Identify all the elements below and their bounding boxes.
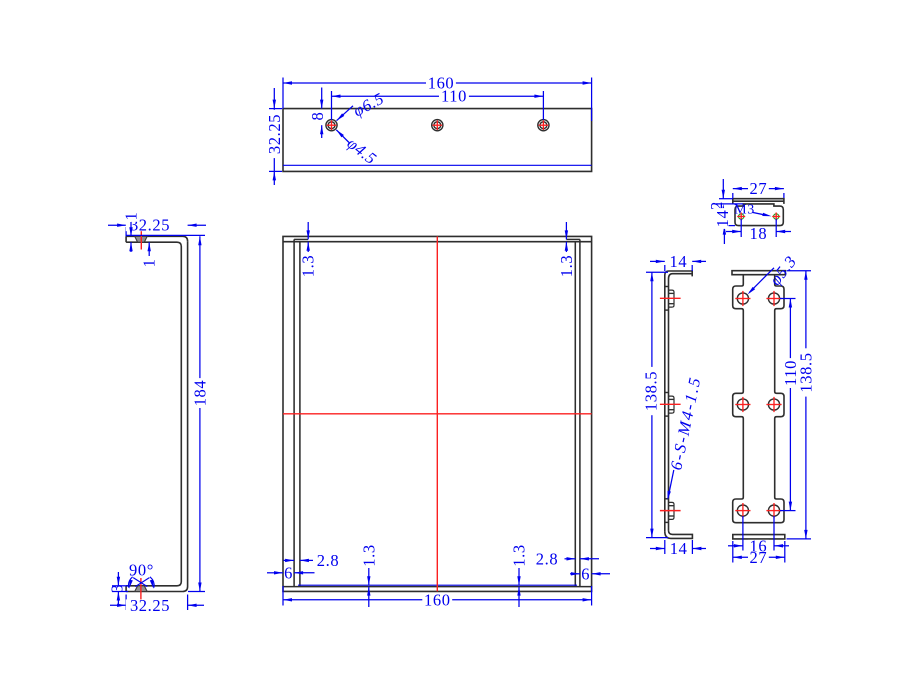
svg-text:184: 184 bbox=[190, 380, 209, 407]
svg-text:2.8: 2.8 bbox=[317, 551, 339, 570]
svg-text:32.25: 32.25 bbox=[130, 596, 170, 615]
svg-text:14: 14 bbox=[713, 210, 732, 228]
svg-text:3: 3 bbox=[108, 584, 127, 593]
svg-text:138.5: 138.5 bbox=[796, 352, 815, 392]
svg-text:14: 14 bbox=[670, 252, 688, 271]
svg-text:14: 14 bbox=[670, 539, 688, 558]
svg-text:1.3: 1.3 bbox=[299, 255, 318, 277]
svg-text:6: 6 bbox=[581, 564, 590, 583]
svg-text:6: 6 bbox=[284, 563, 293, 582]
svg-text:138.5: 138.5 bbox=[641, 371, 660, 411]
svg-text:32.25: 32.25 bbox=[265, 114, 284, 154]
svg-text:1: 1 bbox=[140, 259, 159, 268]
svg-text:1.3: 1.3 bbox=[359, 544, 378, 566]
svg-text:1: 1 bbox=[122, 212, 141, 221]
svg-text:1.3: 1.3 bbox=[557, 255, 576, 277]
svg-text:27: 27 bbox=[750, 548, 768, 567]
svg-text:27: 27 bbox=[750, 179, 768, 198]
svg-text:160: 160 bbox=[424, 590, 451, 609]
svg-text:8: 8 bbox=[308, 112, 327, 121]
svg-text:M3: M3 bbox=[734, 203, 755, 218]
svg-text:2.8: 2.8 bbox=[536, 549, 558, 568]
svg-text:1.3: 1.3 bbox=[510, 544, 529, 566]
svg-text:110: 110 bbox=[441, 87, 467, 106]
svg-text:18: 18 bbox=[750, 224, 768, 243]
